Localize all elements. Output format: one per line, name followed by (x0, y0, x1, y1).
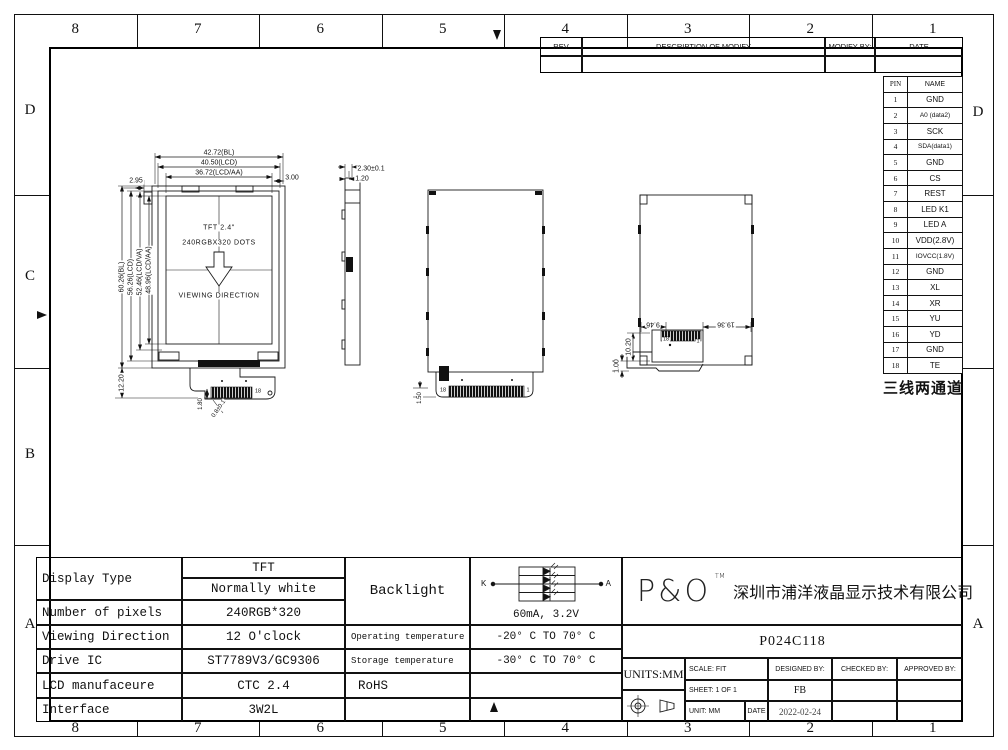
designer-value: FB (768, 680, 832, 701)
pin-name: VDD(2.8V) (908, 233, 962, 248)
storage-temp-label: Storage temperature (345, 649, 470, 673)
pin-row: 12GND (884, 265, 962, 281)
zone-col-divider (749, 14, 750, 47)
rev-empty-modify-by (825, 56, 875, 73)
pin-row: 11IOVCC(1.8V) (884, 249, 962, 265)
sheet-cell: SHEET: 1 OF 1 (685, 680, 768, 701)
pin-number: 11 (884, 249, 908, 264)
rohs-value-empty (470, 673, 622, 698)
pin-number: 2 (884, 108, 908, 123)
pin-row: 3SCK (884, 124, 962, 140)
pin-row: 2A0 (data2) (884, 108, 962, 124)
spec-display-type-value1: TFT (182, 557, 345, 578)
zone-col-label-bottom: 5 (439, 720, 447, 737)
projection-symbol-cell (622, 690, 685, 722)
dim-label: 2.30±0.1 (356, 166, 385, 173)
rev-header-modify-by: MODIFY BY: (825, 37, 875, 56)
dim-label: 60.26(BL) (119, 261, 126, 294)
pin-name: YD (908, 327, 962, 342)
rev-empty-date (875, 56, 963, 73)
pin-number: 13 (884, 280, 908, 295)
operating-temp-value: -20° C TO 70° C (470, 625, 622, 649)
zone-col-divider (627, 14, 628, 47)
pin-header-row: PIN NAME (884, 77, 962, 93)
pin-name: REST (908, 186, 962, 201)
pin-number: 16 (884, 327, 908, 342)
cathode-label: K (481, 579, 486, 588)
zone-col-divider (382, 14, 383, 47)
anode-label: A (606, 579, 611, 588)
zone-row-divider (14, 195, 49, 196)
spec-viewing-value: 12 O'clock (182, 625, 345, 649)
pin-name: XL (908, 280, 962, 295)
pin-name: GND (908, 155, 962, 170)
zone-col-label-top: 4 (562, 21, 570, 38)
zone-col-divider (382, 722, 383, 737)
pin-row: 13XL (884, 280, 962, 296)
pin-name: YU (908, 311, 962, 326)
pin-row: 10VDD(2.8V) (884, 233, 962, 249)
pin-row: 4SDA(data1) (884, 140, 962, 156)
spec-drive-ic-value: ST7789V3/GC9306 (182, 649, 345, 673)
part-number: P024C118 (622, 625, 963, 658)
pin-number: 18 (884, 358, 908, 373)
spec-empty-value (470, 698, 622, 722)
dim-label: 10.20 (626, 337, 633, 357)
dim-label: 48.96(LCD/AA) (146, 245, 153, 294)
pin-number: 15 (884, 311, 908, 326)
datasheet-drawing-sheet: TFT 2.4" 240RGBX320 DOTS VIEWING DIRECTI… (0, 0, 1008, 750)
pin-row: 15YU (884, 311, 962, 327)
zone-col-divider (137, 14, 138, 47)
zone-col-divider (504, 14, 505, 47)
dim-label: 1 (525, 388, 530, 394)
spec-manufacturer-label: LCD manufaceure (36, 673, 182, 698)
dim-label: 1.20 (354, 176, 370, 183)
zone-col-label-bottom: 6 (317, 720, 325, 737)
pin-name: CS (908, 171, 962, 186)
company-logo-cell: P&OTM 深圳市浦洋液晶显示技术有限公司 (622, 557, 963, 625)
pin-row: 17GND (884, 343, 962, 359)
front-view-viewing-direction-label: VIEWING DIRECTION (177, 293, 262, 300)
date-value: 2022-02-24 (768, 701, 832, 722)
company-logo: P&OTM (637, 574, 711, 609)
front-view-type-label: TFT 2.4" (201, 225, 237, 232)
backlight-label: Backlight (345, 557, 470, 625)
spec-interface-label: Interface (36, 698, 182, 722)
led-circuit-icon (471, 560, 623, 608)
dim-label: 1 (695, 339, 700, 345)
pin-row: 16YD (884, 327, 962, 343)
zone-col-divider (872, 722, 873, 737)
zone-col-label-top: 2 (807, 21, 815, 38)
dim-label: 1.50 (417, 391, 423, 405)
pin-name: LED K1 (908, 202, 962, 217)
zone-col-divider (504, 722, 505, 737)
date-extra-empty2 (897, 701, 963, 722)
pin-header-name: NAME (908, 77, 962, 92)
pin-header-pin: PIN (884, 77, 908, 92)
zone-col-label-bottom: 7 (194, 720, 202, 737)
zone-col-label-top: 1 (929, 21, 937, 38)
zone-col-divider (749, 722, 750, 737)
zone-row-label-left: C (25, 268, 35, 285)
rev-header-rev: REV (540, 37, 582, 56)
spec-drive-ic-label: Drive IC (36, 649, 182, 673)
pin-number: 14 (884, 296, 908, 311)
pin-table: PIN NAME 1GND2A0 (data2)3SCK4SDA(data1)5… (883, 76, 963, 374)
zone-col-divider (259, 722, 260, 737)
pin-interface-note: 三线两通道 (878, 377, 968, 398)
rev-header-description: DESCRIPTION OF MODIFY (582, 37, 825, 56)
rev-header-date: DATE (875, 37, 963, 56)
pin-number: 6 (884, 171, 908, 186)
pin-row: 1GND (884, 93, 962, 109)
pin-name: SCK (908, 124, 962, 139)
storage-temp-value: -30° C TO 70° C (470, 649, 622, 673)
pin-name: IOVCC(1.8V) (908, 249, 962, 264)
pin-name: GND (908, 343, 962, 358)
dim-label: 18 (662, 337, 670, 343)
unit-cell: UNIT: MM (685, 701, 745, 722)
pin-number: 4 (884, 140, 908, 155)
spec-manufacturer-value: CTC 2.4 (182, 673, 345, 698)
pin-name: GND (908, 93, 962, 108)
pin-name: A0 (data2) (908, 108, 962, 123)
pin-name: LED A (908, 218, 962, 233)
pin-number: 7 (884, 186, 908, 201)
spec-pixels-label: Number of pixels (36, 600, 182, 625)
pin-row: 6CS (884, 171, 962, 187)
spec-empty-label (345, 698, 470, 722)
dim-label: 42.72(BL) (203, 150, 236, 157)
designed-by-header: DESIGNED BY: (768, 658, 832, 680)
pin-name: SDA(data1) (908, 140, 962, 155)
zone-col-label-top: 5 (439, 21, 447, 38)
pin-name: XR (908, 296, 962, 311)
spec-display-type-value2: Normally white (182, 578, 345, 600)
spec-pixels-value: 240RGB*320 (182, 600, 345, 625)
zone-col-label-bottom: 1 (929, 720, 937, 737)
zone-col-label-top: 3 (684, 21, 692, 38)
zone-row-label-left: A (25, 616, 36, 633)
zone-col-label-top: 8 (72, 21, 80, 38)
pin-name: TE (908, 358, 962, 373)
zone-row-label-right: A (973, 616, 984, 633)
dim-label: 12.20 (119, 373, 126, 393)
pin-row: 5GND (884, 155, 962, 171)
pin-number: 3 (884, 124, 908, 139)
trademark-symbol: TM (715, 572, 725, 580)
zone-col-divider (259, 14, 260, 47)
pin-number: 1 (884, 93, 908, 108)
zone-col-label-bottom: 3 (684, 720, 692, 737)
date-label-cell: DATE (745, 701, 768, 722)
zone-row-divider (14, 368, 49, 369)
pin-row: 14XR (884, 296, 962, 312)
zone-col-label-bottom: 4 (562, 720, 570, 737)
spec-viewing-label: Viewing Direction (36, 625, 182, 649)
spec-interface-value: 3W2L (182, 698, 345, 722)
pin-row: 18TE (884, 358, 962, 373)
backlight-circuit: K A (470, 557, 622, 625)
operating-temp-label: Operating temperature (345, 625, 470, 649)
front-view-resolution-label: 240RGBX320 DOTS (180, 240, 258, 247)
dim-label: 1.00 (614, 358, 621, 374)
zone-row-label-right: D (973, 104, 984, 121)
dim-label: 52.46(LCD/VA) (137, 248, 144, 297)
dim-label: 9.46 (645, 321, 661, 328)
zone-col-divider (137, 722, 138, 737)
date-extra-empty1 (832, 701, 897, 722)
dim-label: 36.72(LCD/AA) (194, 170, 243, 177)
backlight-rating: 60mA, 3.2V (471, 609, 621, 621)
zone-col-divider (627, 722, 628, 737)
spec-display-type-label: Display Type (36, 557, 182, 600)
company-name: 深圳市浦洋液晶显示技术有限公司 (733, 579, 973, 603)
pin-number: 8 (884, 202, 908, 217)
zone-col-label-top: 7 (194, 21, 202, 38)
pin-row: 9LED A (884, 218, 962, 234)
pin-number: 12 (884, 265, 908, 280)
units-cell: UNITS:MM (622, 658, 685, 690)
dim-label: 18 (254, 389, 262, 395)
pin-number: 9 (884, 218, 908, 233)
pin-row: 8LED K1 (884, 202, 962, 218)
projection-symbol-icon (623, 691, 684, 721)
pin-name: GND (908, 265, 962, 280)
zone-row-divider (963, 545, 994, 546)
checked-by-header: CHECKED BY: (832, 658, 897, 680)
dim-label: 18 (439, 388, 447, 394)
dim-label: 19.36 (716, 321, 736, 328)
zone-row-label-left: D (25, 102, 36, 119)
scale-cell: SCALE: FIT (685, 658, 768, 680)
pin-row: 7REST (884, 186, 962, 202)
zone-col-label-bottom: 8 (72, 720, 80, 737)
dim-label: 2.95 (128, 178, 144, 185)
pin-number: 5 (884, 155, 908, 170)
zone-col-divider (872, 14, 873, 47)
zone-row-label-left: B (25, 446, 35, 463)
zone-col-label-bottom: 2 (807, 720, 815, 737)
checked-by-value-empty (832, 680, 897, 701)
pin-number: 10 (884, 233, 908, 248)
dim-label: 3.00 (284, 175, 300, 182)
zone-row-divider (963, 195, 994, 196)
dim-label: 40.50(LCD) (200, 160, 238, 167)
dim-label: 56.26(LCD) (128, 258, 135, 296)
approved-by-value-empty (897, 680, 963, 701)
rev-empty-description (582, 56, 825, 73)
zone-row-divider (14, 545, 49, 546)
zone-col-label-top: 6 (317, 21, 325, 38)
rev-empty-rev (540, 56, 582, 73)
zone-row-divider (963, 368, 994, 369)
approved-by-header: APPROVED BY: (897, 658, 963, 680)
pin-number: 17 (884, 343, 908, 358)
rohs-label: RoHS (345, 673, 470, 698)
dim-label: 1.80 (198, 397, 204, 411)
